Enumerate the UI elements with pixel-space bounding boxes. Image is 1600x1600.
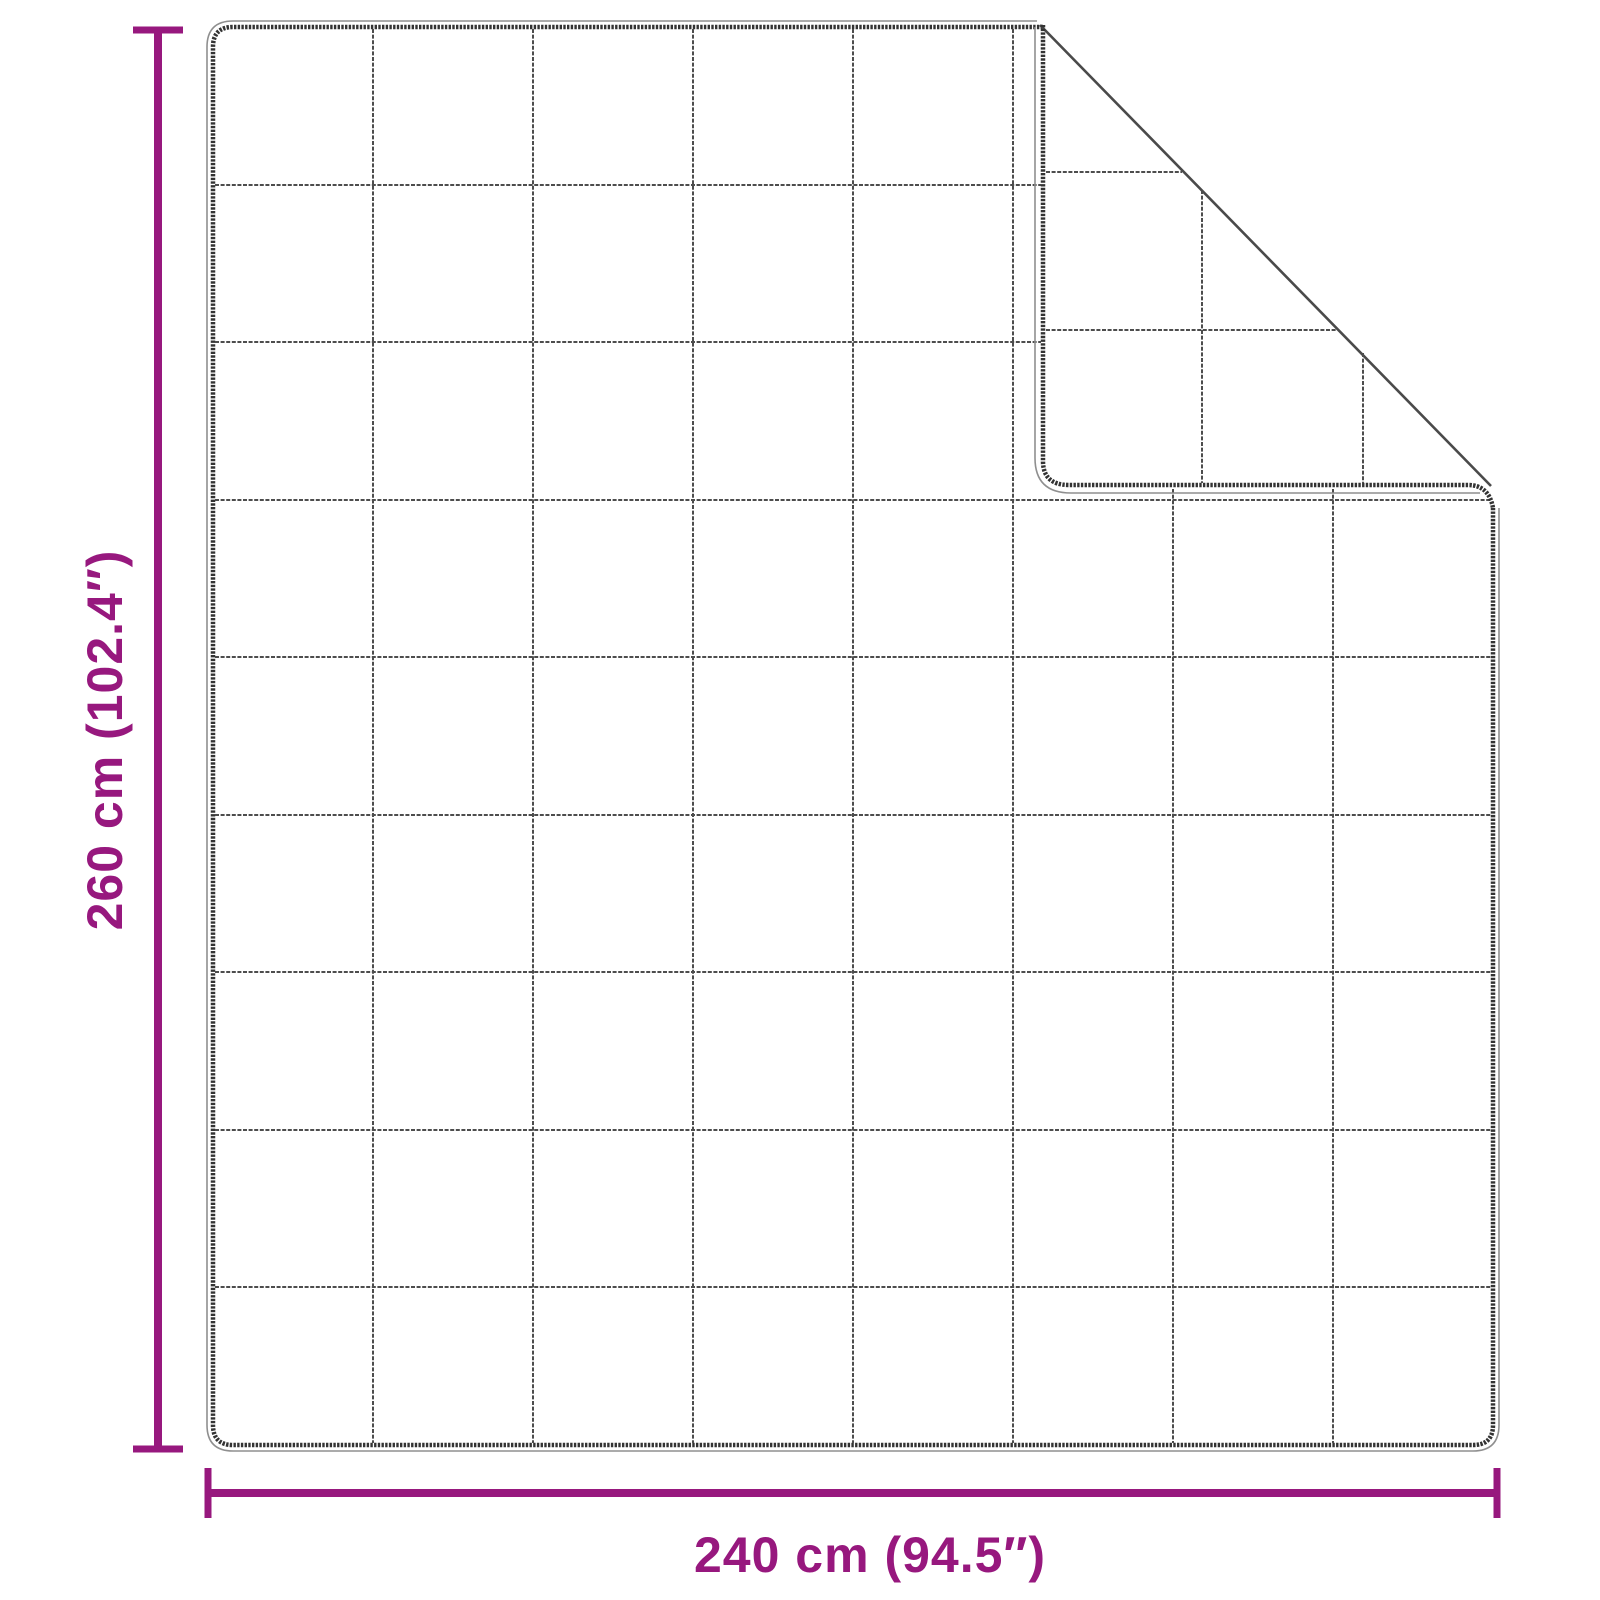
blanket-grid-lines <box>215 29 1491 1443</box>
horizontal-dimension-label: 240 cm (94.5″) <box>694 1527 1046 1583</box>
flap-grid-lines <box>1046 172 1363 483</box>
vertical-dimension-label: 260 cm (102.4″) <box>77 550 133 931</box>
fold-diagonal-crease <box>1040 25 1491 486</box>
folded-corner-flap <box>1035 25 1493 508</box>
diagram-canvas: 260 cm (102.4″) 240 cm (94.5″) <box>0 0 1600 1600</box>
vertical-dimension: 260 cm (102.4″) <box>77 30 183 1449</box>
horizontal-dimension: 240 cm (94.5″) <box>208 1468 1497 1583</box>
blanket <box>207 21 1499 1451</box>
blanket-dimension-diagram: 260 cm (102.4″) 240 cm (94.5″) <box>0 0 1600 1600</box>
flap-outer-line <box>1035 27 1480 493</box>
